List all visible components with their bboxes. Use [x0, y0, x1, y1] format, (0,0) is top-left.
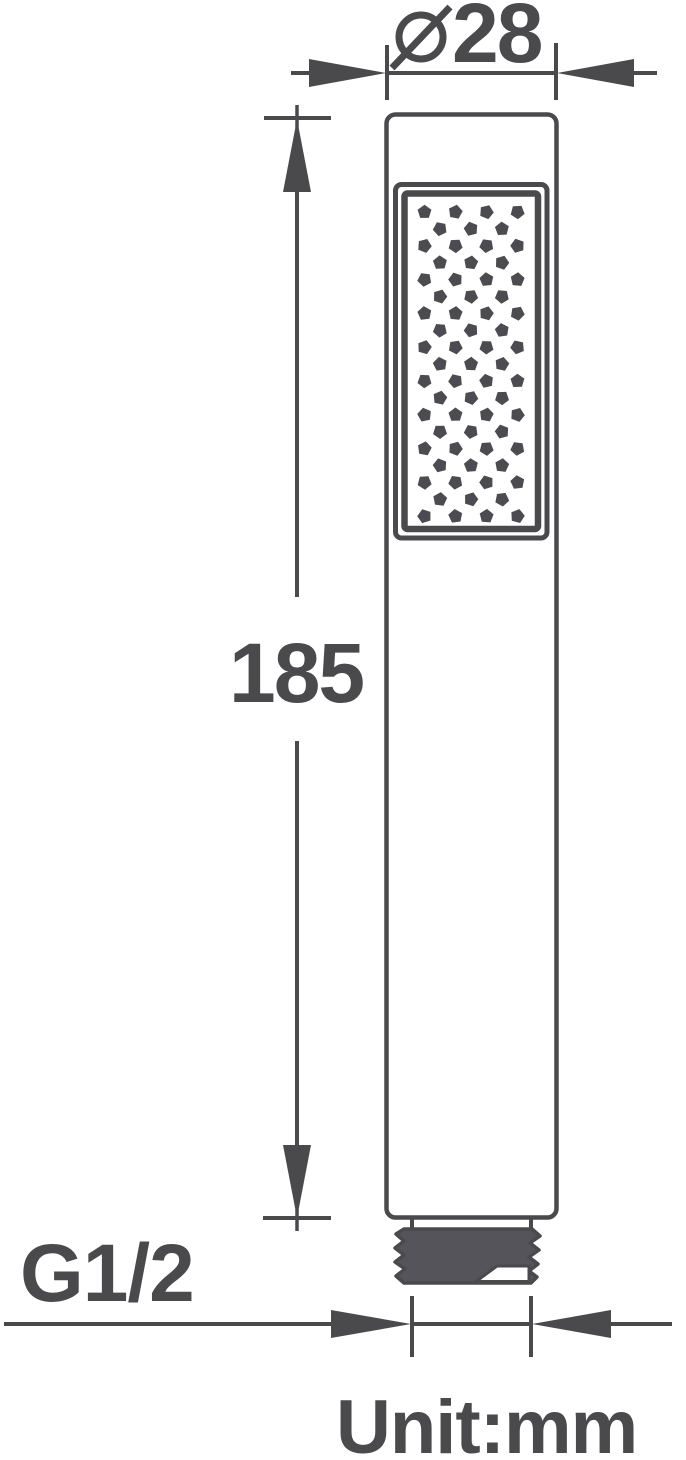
nozzle-dot — [465, 492, 478, 506]
nozzle-dot — [464, 458, 478, 472]
nozzle-dot — [495, 493, 509, 507]
nozzle-dot — [449, 442, 462, 456]
nozzle-dot — [479, 239, 493, 253]
nozzle-dot — [418, 205, 432, 218]
dim-arrow-left — [331, 1310, 411, 1338]
nozzle-dot — [480, 205, 494, 219]
nozzle-dot — [418, 239, 432, 253]
nozzle-dot — [510, 475, 524, 489]
nozzle-dot — [448, 273, 461, 287]
spray-face-panel — [396, 185, 548, 539]
nozzle-dot — [480, 408, 494, 422]
nozzle-dot — [464, 256, 478, 270]
shower-wand-technical-drawing: 28 185 G1/2 Unit:mm — [0, 0, 686, 1460]
nozzle-dot — [480, 306, 493, 320]
nozzle-dot — [433, 357, 447, 371]
nozzle-dot — [510, 442, 524, 456]
nozzle-dot — [448, 374, 462, 388]
nozzle-dot — [417, 408, 431, 422]
nozzle-dot — [417, 273, 431, 287]
nozzle-dot — [511, 408, 524, 422]
nozzle-dot — [434, 391, 448, 405]
nozzle-dot — [449, 341, 463, 355]
nozzle-dot — [510, 239, 523, 253]
nozzle-dot — [464, 290, 478, 304]
diameter-value-label: 28 — [452, 0, 541, 75]
arrow-down — [283, 1145, 311, 1218]
nozzle-dot — [449, 306, 463, 320]
nozzle-dot — [480, 442, 494, 456]
wand-outline — [387, 115, 557, 1218]
nozzle-dot — [479, 272, 493, 286]
nozzle-dot — [433, 255, 447, 268]
nozzle-dots — [417, 205, 525, 523]
nozzle-dot — [495, 222, 509, 235]
nozzle-dot — [418, 375, 432, 388]
nozzle-dot — [448, 476, 462, 490]
nozzle-dot — [495, 323, 509, 337]
nozzle-dot — [511, 374, 525, 387]
nozzle-dot — [496, 256, 509, 270]
unit-label: Unit:mm — [336, 1390, 637, 1460]
thread-connector — [395, 1216, 540, 1283]
nozzle-dot — [464, 323, 477, 337]
nozzle-dot — [511, 307, 525, 321]
nozzle-dot — [449, 240, 463, 253]
dim-arrow-right — [532, 1310, 611, 1338]
nozzle-dot — [464, 357, 478, 370]
nozzle-dot — [479, 476, 492, 490]
nozzle-dot — [449, 408, 463, 421]
nozzle-dot — [511, 206, 525, 219]
nozzle-dot — [418, 441, 432, 455]
nozzle-dot — [433, 324, 447, 338]
nozzle-dot — [496, 357, 510, 371]
nozzle-dot — [495, 425, 508, 439]
nozzle-dot — [448, 509, 462, 523]
diameter-symbol-icon — [384, 0, 456, 72]
nozzle-dot — [495, 392, 509, 405]
nozzle-dot — [464, 425, 478, 439]
nozzle-dot — [434, 290, 447, 304]
nozzle-dot — [480, 341, 494, 354]
dim-arrow-left — [309, 59, 386, 87]
nozzle-dot — [480, 509, 494, 523]
nozzle-dot — [417, 509, 430, 523]
nozzle-dot — [449, 205, 463, 219]
nozzle-dot — [417, 306, 431, 320]
nozzle-dot — [433, 222, 447, 236]
nozzle-dot — [511, 272, 525, 286]
nozzle-dot — [464, 222, 478, 236]
nozzle-dot — [511, 509, 524, 523]
nozzle-dot — [433, 458, 446, 472]
nozzle-dot — [433, 426, 447, 439]
dim-arrow-right — [557, 59, 634, 87]
nozzle-dot — [418, 340, 431, 354]
nozzle-dot — [465, 391, 479, 405]
shower-wand-body — [387, 115, 557, 1218]
nozzle-dot — [510, 341, 524, 355]
nozzle-dot — [433, 492, 447, 506]
nozzle-dot — [495, 458, 509, 472]
nozzle-dot — [418, 476, 432, 490]
thread-size-label: G1/2 — [20, 1233, 194, 1315]
length-value-label: 185 — [229, 631, 363, 715]
arrow-up — [283, 119, 311, 192]
nozzle-dot — [495, 290, 509, 304]
nozzle-dot — [479, 374, 493, 388]
